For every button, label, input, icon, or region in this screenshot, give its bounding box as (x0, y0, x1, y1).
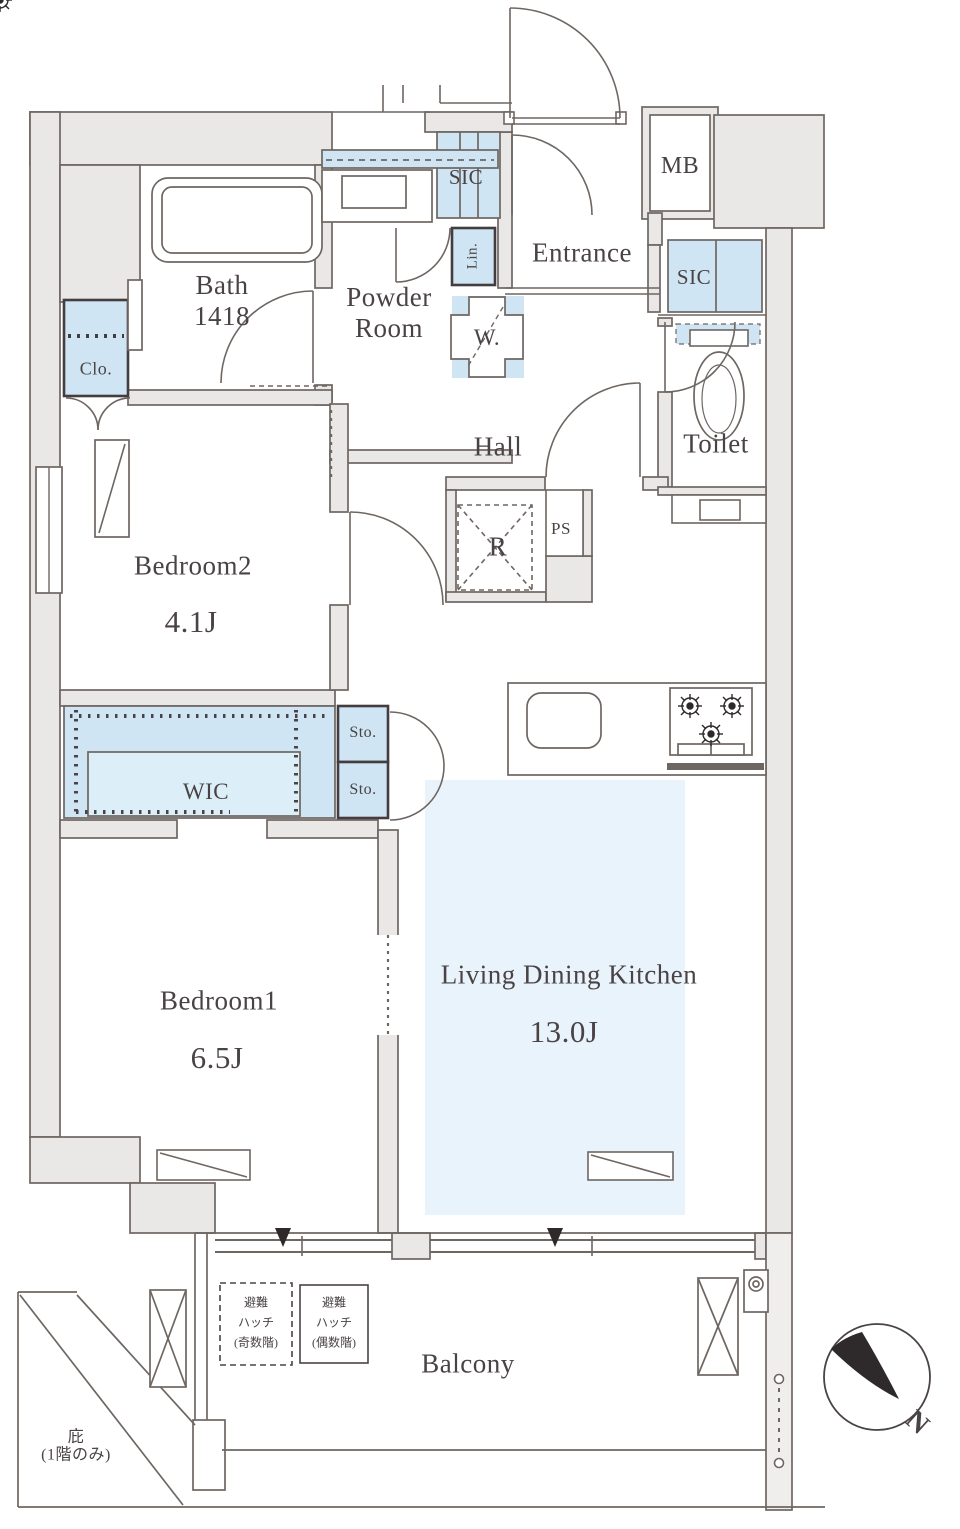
room-label-wic: WIC (183, 779, 229, 805)
room-label-refrigerator: R (489, 531, 508, 562)
room-label-powder-room: Powder Room (314, 282, 464, 344)
balcony-partition (766, 1233, 792, 1510)
room-label-sic-entrance: SIC (677, 265, 711, 289)
room-label-storage-upper: Sto. (349, 724, 376, 742)
room-size-bedroom2: 4.1J (165, 604, 218, 640)
room-label-ldk: Living Dining Kitchen (441, 959, 697, 990)
vanity (322, 170, 432, 222)
room-size-ldk: 13.0J (530, 1014, 599, 1050)
room-label-bath: Bath1418 (194, 270, 250, 332)
evacuation-hatch-odd-label: 避難ハッチ(奇数階) (234, 1293, 278, 1352)
room-label-storage-lower: Sto. (349, 781, 376, 799)
bedroom1-ldk-slider (376, 935, 400, 1035)
south-windows (195, 1228, 766, 1256)
floor-plan: Bath1418 Powder Room SIC Lin. W. Entranc… (0, 0, 960, 1529)
room-label-toilet: Toilet (683, 428, 749, 459)
room-size-bedroom1: 6.5J (191, 1040, 244, 1076)
room-label-hall: Hall (474, 431, 523, 462)
air-conditioner-marks (157, 1150, 673, 1180)
room-label-entrance: Entrance (532, 237, 632, 268)
room-label-bedroom1: Bedroom1 (160, 985, 278, 1016)
eaves-note: 庇(1階のみ) (41, 1429, 111, 1466)
room-label-sic-hall: SIC (449, 165, 483, 189)
room-label-bedroom2: Bedroom2 (134, 550, 252, 581)
room-label-washer: W. (474, 325, 500, 351)
floor-plan-drawing (0, 0, 960, 1529)
room-label-linen: Lin. (464, 243, 481, 270)
evacuation-hatch-even-label: 避難ハッチ(偶数階) (312, 1293, 356, 1352)
room-label-pipe-space: PS (551, 519, 571, 539)
room-label-meter-box: MB (661, 153, 699, 181)
room-label-closet: Clo. (80, 359, 113, 380)
room-label-balcony: Balcony (421, 1348, 514, 1379)
entrance-step (505, 288, 660, 294)
kitchen-counter (508, 683, 766, 775)
ldk-floor-shading (425, 780, 685, 1215)
